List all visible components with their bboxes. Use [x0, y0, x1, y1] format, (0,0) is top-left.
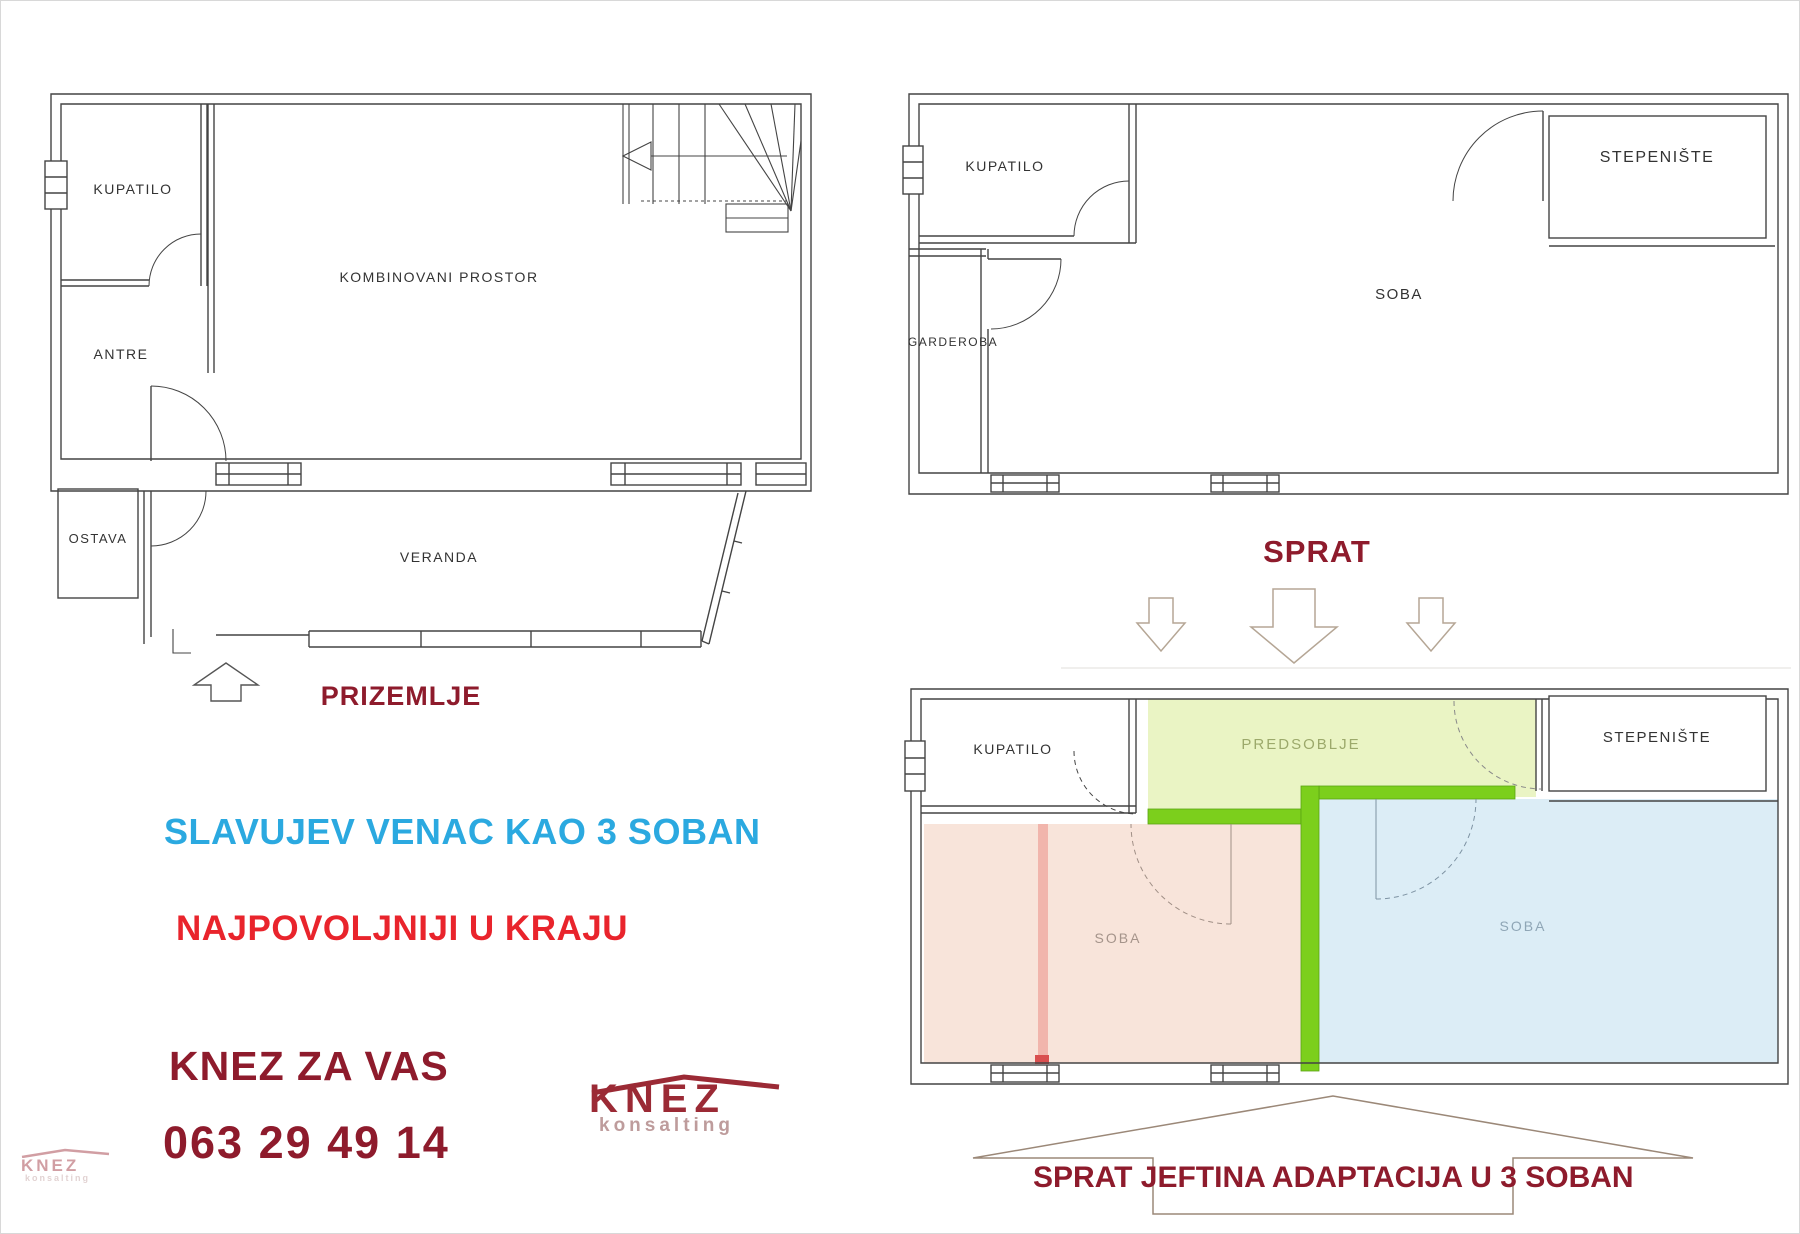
marketing-slogan: KNEZ ZA VAS — [169, 1043, 449, 1090]
room-label-antre: ANTRE — [94, 346, 149, 362]
window-icon — [216, 463, 301, 485]
door-arc — [991, 259, 1061, 329]
door-arc — [1074, 181, 1129, 236]
room-label-stepeniste-upper: STEPENIŠTE — [1600, 147, 1715, 166]
new-wall-vertical — [1301, 786, 1319, 1071]
down-arrow-small-right-icon — [1407, 598, 1455, 651]
door-arc — [151, 386, 226, 461]
new-wall-horizontal-right — [1319, 786, 1515, 799]
watermark-logo: KNEZ konsalting — [21, 1145, 131, 1183]
window-icon — [903, 146, 923, 194]
phone-number: 063 29 49 14 — [163, 1117, 450, 1169]
window-icon — [905, 741, 925, 791]
window-icon — [1211, 475, 1279, 492]
window-icon — [1211, 1065, 1279, 1082]
door-arc — [151, 491, 206, 546]
staircase — [623, 104, 801, 232]
room-label-stepeniste-adapted: STEPENIŠTE — [1603, 729, 1711, 746]
room-label-soba-left: SOBA — [1095, 930, 1142, 946]
upper-floor-caption: SPRAT — [1217, 534, 1417, 570]
ground-floor-caption: PRIZEMLJE — [291, 681, 511, 712]
room-label-kupatilo-upper: KUPATILO — [965, 158, 1044, 174]
window-icon — [991, 475, 1059, 492]
ground-floor-plan — [45, 94, 811, 653]
room-label-kupatilo-adapted: KUPATILO — [973, 741, 1052, 757]
door-arc — [149, 234, 201, 286]
new-wall-horizontal-left — [1148, 809, 1301, 824]
window-icon — [756, 463, 806, 485]
window-icon — [45, 161, 67, 209]
down-arrow-large-icon — [1251, 589, 1337, 663]
big-up-arrow-icon — [973, 1096, 1693, 1214]
room-label-predsoblje: PREDSOBLJE — [1241, 736, 1360, 753]
room-label-garderoba: GARDEROBA — [908, 335, 998, 349]
watermark-subtitle: konsalting — [25, 1173, 131, 1183]
down-arrow-small-left-icon — [1137, 598, 1185, 651]
adapted-floor-caption: SPRAT JEFTINA ADAPTACIJA U 3 SOBAN — [1033, 1161, 1633, 1195]
company-logo: KNEZ konsalting — [589, 1073, 789, 1137]
room-label-kombinovani: KOMBINOVANI PROSTOR — [339, 269, 538, 285]
room-label-kupatilo: KUPATILO — [93, 181, 172, 197]
window-icon — [991, 1065, 1059, 1082]
door-arc — [1074, 751, 1136, 814]
up-arrow-icon — [194, 663, 258, 701]
veranda-structure — [144, 491, 746, 653]
logo-subtitle: konsalting — [599, 1115, 789, 1137]
transition-arrows — [1137, 589, 1455, 663]
window-icon — [611, 463, 741, 485]
removed-wall-stripe — [1038, 824, 1048, 1063]
watermark-name: KNEZ — [21, 1157, 131, 1174]
room-label-ostava: OSTAVA — [69, 531, 128, 546]
soba-right-area — [1319, 799, 1778, 1063]
marketing-headline: SLAVUJEV VENAC KAO 3 SOBAN — [164, 811, 760, 853]
marketing-subline: NAJPOVOLJNIJI U KRAJU — [176, 909, 628, 949]
flyer-canvas: KUPATILO ANTRE KOMBINOVANI PROSTOR OSTAV… — [0, 0, 1800, 1234]
room-label-soba-upper: SOBA — [1375, 286, 1423, 303]
door-arc — [1453, 111, 1543, 201]
room-label-veranda: VERANDA — [400, 549, 478, 565]
room-label-soba-right: SOBA — [1500, 918, 1547, 934]
